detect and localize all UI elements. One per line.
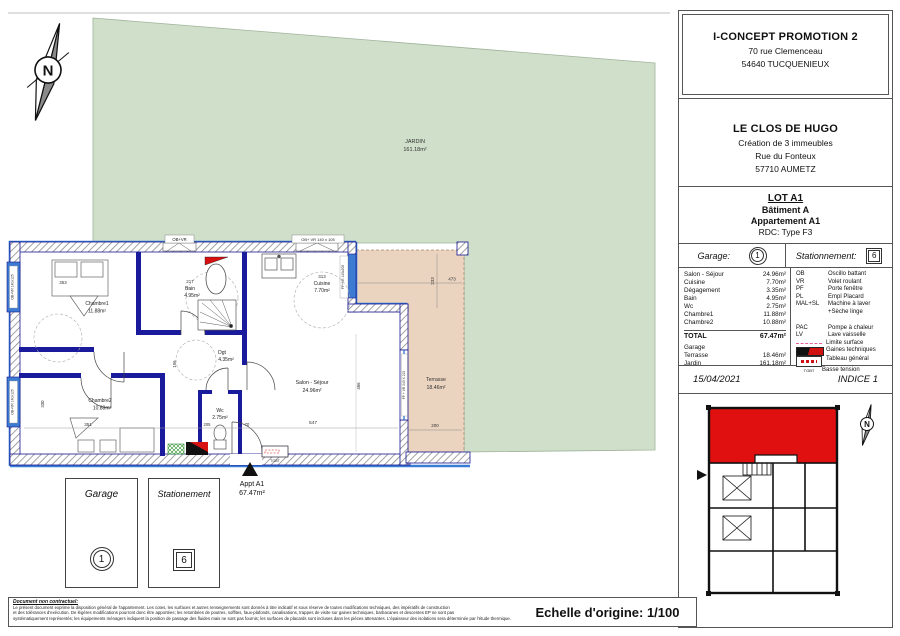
bain-num: 217 <box>186 279 194 284</box>
project-street: Rue du Fonteux <box>679 151 892 161</box>
footer-bar: Document non contractuel: Le présent doc… <box>8 597 697 627</box>
window-top-small-label: OB+VR <box>172 237 186 242</box>
dim-233: 233 <box>430 277 435 285</box>
project-city: 57710 AUMETZ <box>679 164 892 174</box>
area-row: Bain4.95m² <box>684 295 786 303</box>
garage-number-circle: 1 <box>90 547 114 571</box>
scale-label: Echelle d'origine: 1/100 <box>519 598 696 626</box>
tgbt-symbol-caption: TGBT <box>796 367 822 375</box>
project-name: LE CLOS DE HUGO <box>679 123 892 135</box>
gaines-techniques-symbol <box>796 347 824 356</box>
area-row: Chambre210.88m² <box>684 319 786 327</box>
dim-466: 466 <box>356 382 361 390</box>
legend-column: OBOscillo battant VRVolet roulant PFPort… <box>791 268 892 365</box>
project-block: LE CLOS DE HUGO Création de 3 immeubles … <box>679 99 892 187</box>
parking-value-square: 6 <box>866 248 882 264</box>
dim-200: 200 <box>431 423 439 428</box>
door-window-salon: PF + VR 240 X 215 <box>400 350 408 420</box>
wc-area-label: 2.75m² <box>212 415 228 421</box>
north-arrow: N <box>20 20 75 125</box>
highlighted-apartment <box>709 408 837 463</box>
areas-and-legend-table: Salon - Séjour24.96m² Cuisine7.70m² Déga… <box>679 268 892 366</box>
dim-547: 547 <box>309 420 317 426</box>
dim-330: 330 <box>40 400 45 408</box>
window-cuisine-top-label: OB+ VR 140 x 105 <box>301 237 335 242</box>
key-plan-drawing: N <box>679 394 892 624</box>
legend-row-gaines: Gaines techniques <box>796 347 890 356</box>
chambre2-area-label: 10.88m² <box>93 406 112 412</box>
chambre1-area-label: 11.88m² <box>88 309 106 315</box>
door-window-cuisine-label: PF+VR 140x205 <box>341 265 345 289</box>
window-cuisine-top: OB+ VR 140 x 105 <box>292 235 344 251</box>
window-chambre2-label: OB+VR 140x125 <box>11 389 15 415</box>
dim-196: 196 <box>172 360 177 368</box>
bain-area-label: 4.95m² <box>184 293 200 299</box>
salon-area-label: 24.96m² <box>302 388 321 394</box>
plan-sheet: JARDIN 161.18m² Terrasse 18.46m² <box>0 0 900 636</box>
promoter-address2: 54640 TUCQUENIEUX <box>683 59 888 69</box>
legend-row-tgbt: Tableau général <box>796 356 890 367</box>
cuisine-label: Cuisine <box>314 281 331 287</box>
stationnement-box-label: Stationement <box>149 489 219 499</box>
window-top-small: OB+VR <box>163 235 196 251</box>
key-plan-building <box>697 405 840 596</box>
entrance-area-label: 67.47m² <box>239 490 265 497</box>
area-row: Wc2.75m² <box>684 303 786 311</box>
legend-row: PFPorte fenêtre <box>796 286 890 294</box>
parking-row: Garage: 1 Stationnement: 6 <box>679 244 892 268</box>
stationnement-number-square: 6 <box>173 549 195 571</box>
room-wc: Wc 2.75m² 205 70 <box>168 408 250 455</box>
chambre1-num: 353 <box>59 280 67 285</box>
window-chambre1: OB+VR 140x125 <box>7 262 20 312</box>
room-chambre1: 353 Chambre1 11.88m² <box>34 260 109 362</box>
legend-row: +Sèche linge <box>796 309 890 317</box>
terrace-area-label: 18.46m² <box>426 385 445 391</box>
window-chambre2: OB+VR 140x125 <box>7 377 20 427</box>
garage-value: 1 <box>751 249 764 262</box>
plan-indice: INDICE 1 <box>838 374 878 385</box>
svg-text:N: N <box>864 420 870 429</box>
door-window-cuisine: PF+VR 140x205 <box>340 254 356 298</box>
legend-row: LVLave vaisselle <box>796 332 890 340</box>
lot-apartment: Appartement A1 <box>679 216 892 226</box>
svg-text:N: N <box>43 63 54 80</box>
area-row: Cuisine7.70m² <box>684 279 786 287</box>
dim-205: 205 <box>204 422 212 427</box>
chambre2-label: Chambre2 <box>88 398 112 404</box>
garage-number: 1 <box>93 550 111 568</box>
wc-label: Wc <box>216 408 224 414</box>
lot-floor-type: RDC: Type F3 <box>679 227 892 237</box>
stationnement-legend-box: Stationement 6 <box>148 478 220 588</box>
project-desc: Création de 3 immeubles <box>679 138 892 148</box>
garage-legend-box: Garage 1 <box>65 478 138 588</box>
disclaimer-line3: systématiquement représentés; les équipe… <box>13 616 515 621</box>
parking-label: Stationnement: <box>796 251 857 261</box>
gaine-technique-entrance <box>186 442 208 455</box>
bain-label: Bain <box>185 286 195 292</box>
garage-box-label: Garage <box>66 489 137 500</box>
promoter-address1: 70 rue Clemenceau <box>683 46 888 56</box>
cuisine-num: 313 <box>318 274 326 279</box>
tgbt-symbol <box>796 356 822 367</box>
entrance-label: Appt A1 <box>240 481 265 488</box>
room-salon: Salon - Séjour 24.96m² 547 466 TGBT <box>24 334 398 463</box>
chambre1-label: Chambre1 <box>85 301 109 307</box>
area-row: Chambre111.88m² <box>684 311 786 319</box>
area-row: Salon - Séjour24.96m² <box>684 271 786 279</box>
garden-area-label: 161.18m² <box>403 147 426 153</box>
area-row: Terrasse18.46m² <box>684 352 786 360</box>
terrace-label: Terrasse <box>426 377 446 383</box>
dgt-label: Dgt <box>218 350 226 356</box>
lot-block: LOT A1 Bâtiment A Appartement A1 RDC: Ty… <box>679 187 892 244</box>
promoter-block: I-CONCEPT PROMOTION 2 70 rue Clemenceau … <box>679 11 892 99</box>
window-chambre1-label: OB+VR 140x125 <box>11 274 15 300</box>
room-chambre2: Chambre2 10.88m² 351 330 <box>40 398 154 452</box>
legend-row-limite: Limite surface <box>796 340 890 348</box>
garden-label: JARDIN <box>405 139 425 145</box>
disclaimer: Document non contractuel: Le présent doc… <box>9 598 519 626</box>
plan-date: 15/04/2021 <box>693 374 741 385</box>
legend-row: OBOscillo battant <box>796 271 890 279</box>
stationnement-number: 6 <box>176 552 192 568</box>
areas-column: Salon - Séjour24.96m² Cuisine7.70m² Déga… <box>679 268 791 365</box>
door-window-salon-label: PF + VR 240 X 215 <box>402 371 406 400</box>
room-dgt: Dgt 4.35m² 196 <box>172 340 234 380</box>
legend-row: PLEmpl Placard <box>796 294 890 302</box>
key-plan-block: N <box>679 394 892 626</box>
area-row: Dégagement3.35m² <box>684 287 786 295</box>
legend-row: VRVolet roulant <box>796 279 890 287</box>
room-cuisine: 313 Cuisine 7.70m² <box>262 254 350 328</box>
lot-number: LOT A1 <box>679 193 892 204</box>
promoter-name: I-CONCEPT PROMOTION 2 <box>683 31 888 43</box>
dim-70: 70 <box>245 422 250 427</box>
room-bain: 217 Bain 4.95m² <box>184 257 238 330</box>
legend-row: MAL+SLMachine à laver <box>796 301 890 309</box>
area-row: Garage <box>684 344 786 352</box>
parking-value: 6 <box>868 250 880 262</box>
dgt-area-label: 4.35m² <box>218 357 234 363</box>
limite-surface-symbol <box>796 343 822 344</box>
cuisine-area-label: 7.70m² <box>314 288 330 294</box>
area-row: Jardin161.18m² <box>684 360 786 368</box>
garage-label: Garage: <box>697 251 730 261</box>
key-plan-north-arrow: N <box>856 403 877 447</box>
title-block-panel: I-CONCEPT PROMOTION 2 70 rue Clemenceau … <box>678 10 893 628</box>
area-total-row: TOTAL67.47m² <box>684 330 786 341</box>
dim-473: 473 <box>448 277 456 282</box>
legend-row: PACPompe à chaleur <box>796 325 890 333</box>
garage-value-circle: 1 <box>749 247 767 265</box>
tgbt-label: TGBT <box>270 459 280 463</box>
vmc-box <box>168 444 184 454</box>
lot-building: Bâtiment A <box>679 205 892 215</box>
salon-label: Salon - Séjour <box>296 380 329 386</box>
chambre2-num: 351 <box>84 422 92 427</box>
